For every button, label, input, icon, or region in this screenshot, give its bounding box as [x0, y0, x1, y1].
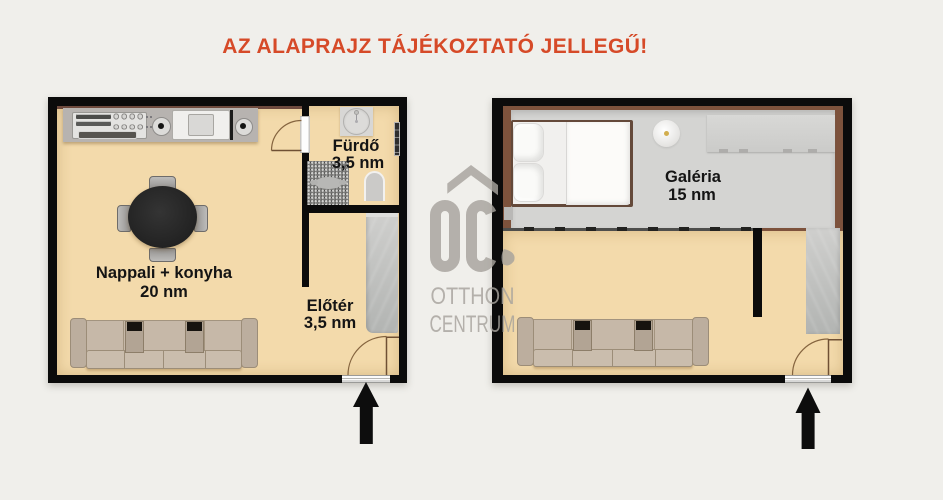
svg-text:CENTRUM: CENTRUM	[430, 311, 516, 338]
svg-text:OTTHON: OTTHON	[431, 283, 515, 310]
